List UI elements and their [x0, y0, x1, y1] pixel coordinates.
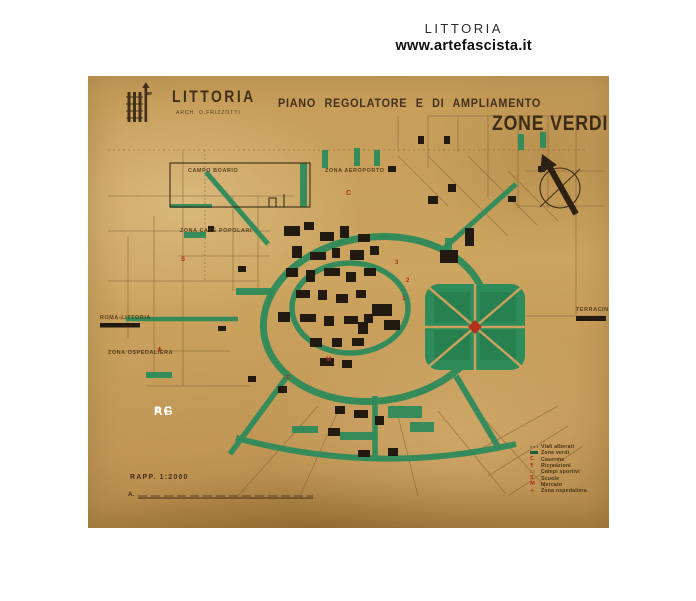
map-photo[interactable]: A XII EF LITTORIA ARCH. O.FRIZZOTTI PIAN… — [88, 76, 609, 528]
label-campo-boario: CAMPO BOARIO — [188, 168, 238, 174]
marker-ospedale-cross: + — [157, 344, 162, 354]
mercato-icon: M — [530, 482, 541, 487]
page: LITTORIA www.artefascista.it — [0, 0, 696, 601]
site-url-link[interactable]: www.artefascista.it — [395, 38, 532, 54]
label-roma-littoria: ROMA-LITTORIA — [100, 315, 151, 321]
ricreazioni-icon: ¶ — [530, 464, 541, 469]
site-title: LITTORIA — [395, 21, 532, 36]
scuole-icon: S — [530, 476, 541, 481]
viali-alberati-icon: ··· — [530, 445, 541, 450]
map-legend: ··· Viali alberati Zone verdi C Caserme … — [530, 444, 608, 494]
map-architect: ARCH. O.FRIZZOTTI — [176, 110, 241, 116]
legend-item: + Zona ospedaliera — [530, 488, 608, 494]
map-subtitle: PIANO REGOLATORE E DI AMPLIAMENTO — [278, 98, 541, 110]
scale-label: RAPP. 1:2000 — [130, 474, 189, 481]
marker-number-3: 3 — [395, 260, 398, 266]
scale-bar-prefix: A. — [128, 492, 134, 498]
label-zona-ospedaliera: ZONA OSPEDALIERA — [108, 350, 173, 356]
marker-caserma: C — [346, 190, 351, 197]
zone-verdi-title: ZONE VERDI — [492, 112, 608, 136]
marker-number-1: 1 — [402, 296, 405, 302]
marker-number-2: 2 — [406, 278, 409, 284]
marker-caserma-2: C — [286, 375, 290, 381]
marker-mercato: M — [326, 357, 331, 363]
caserme-icon: C — [530, 457, 541, 462]
zone-verdi-bar-icon — [530, 451, 541, 456]
map-title: LITTORIA — [172, 87, 256, 107]
label-terracina: TERRACINA — [576, 307, 609, 313]
site-header: LITTORIA www.artefascista.it — [395, 21, 532, 54]
marker-scuola: S — [181, 257, 185, 263]
campi-sportivi-icon: ▭ — [530, 470, 541, 475]
compass-icon — [540, 154, 580, 214]
label-zona-case-popolari: ZONA CASE POPOLARI — [180, 228, 252, 234]
zona-ospedaliera-cross-icon: + — [530, 489, 541, 494]
label-zona-aeroporto: ZONA AEROPORTO — [325, 168, 384, 174]
